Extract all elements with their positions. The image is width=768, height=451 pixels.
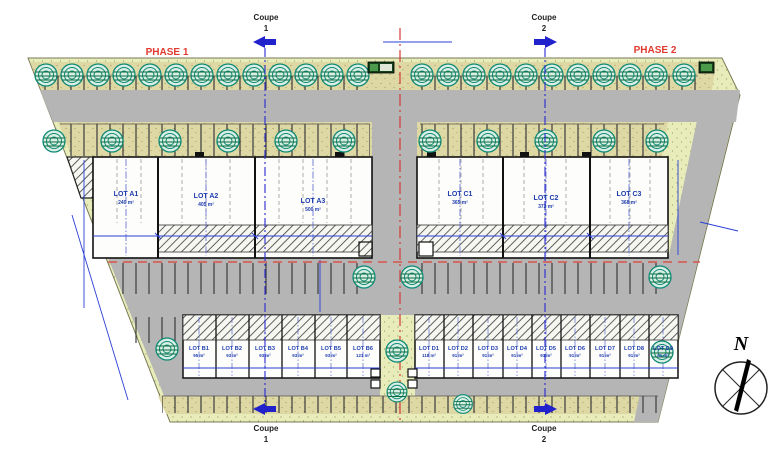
lot-d2-area: 91 m² — [452, 353, 464, 358]
lot-d9-name: LOT D9 — [653, 346, 673, 352]
lot-d1-name: LOT D1 — [419, 346, 439, 352]
lot-d6-area: 91 m² — [569, 353, 581, 358]
coupe1-top-word: Coupe — [254, 13, 279, 22]
lot-a3-name: LOT A3 — [301, 198, 326, 205]
lot-b2-name: LOT B2 — [222, 346, 242, 352]
coupe1-bottom-word: Coupe — [254, 424, 279, 433]
lot-b4-name: LOT B4 — [288, 346, 309, 352]
lot-b3-name: LOT B3 — [255, 346, 275, 352]
lot-a2-area: 405 m² — [198, 202, 214, 208]
lot-d8-area: 91 m² — [628, 353, 640, 358]
hatched-existing-structure — [67, 157, 93, 198]
lot-b2-area: 93 m² — [226, 353, 238, 358]
lot-b6-name: LOT B6 — [353, 346, 373, 352]
lot-d1-area: 118 m² — [422, 353, 436, 358]
coupe2-bottom-num: 2 — [542, 435, 547, 444]
coupe1-top-num: 1 — [264, 24, 269, 33]
lot-b5-area: 93 m² — [325, 353, 337, 358]
coupe2-bottom-word: Coupe — [532, 424, 557, 433]
lot-d7-area: 91 m² — [599, 353, 611, 358]
lot-d6-name: LOT D6 — [565, 346, 585, 352]
north-compass: N — [715, 333, 767, 414]
lot-d7-name: LOT D7 — [595, 346, 615, 352]
row-b — [183, 315, 380, 378]
coupe2-top-word: Coupe — [532, 13, 557, 22]
lot-d3-area: 91 m² — [482, 353, 494, 358]
lot-d5-area: 91 m² — [540, 353, 552, 358]
site-plan-drawing: N PHASE 1 PHASE 2 Coupe 1 Coupe 2 Coupe … — [0, 0, 768, 451]
lot-b3-area: 93 m² — [259, 353, 271, 358]
lot-c2-name: LOT C2 — [534, 195, 559, 202]
phase1-label: PHASE 1 — [146, 47, 189, 58]
lot-a2-name: LOT A2 — [194, 193, 219, 200]
lot-a1-area: 240 m² — [118, 200, 134, 206]
lot-d8-name: LOT D8 — [624, 346, 644, 352]
coupe2-top-num: 2 — [542, 24, 547, 33]
lot-d4-name: LOT D4 — [507, 346, 528, 352]
lot-c3-name: LOT C3 — [617, 191, 642, 198]
coupe1-bottom-num: 1 — [264, 435, 269, 444]
lot-c1-area: 365 m² — [452, 200, 468, 206]
north-label: N — [733, 333, 750, 355]
lot-b4-area: 93 m² — [292, 353, 304, 358]
lot-b1-area: 95 m² — [193, 353, 205, 358]
lot-d4-area: 91 m² — [511, 353, 523, 358]
lot-d3-name: LOT D3 — [478, 346, 498, 352]
lot-a3-area: 500 m² — [305, 207, 321, 213]
phase2-label: PHASE 2 — [634, 45, 677, 56]
lot-b5-name: LOT B5 — [321, 346, 341, 352]
lot-b1-name: LOT B1 — [189, 346, 209, 352]
lot-c1-name: LOT C1 — [448, 191, 473, 198]
lot-d5-name: LOT D5 — [536, 346, 556, 352]
lot-b6-area: 121 m² — [356, 353, 370, 358]
lot-c3-area: 368 m² — [621, 200, 637, 206]
site-plan-page: N PHASE 1 PHASE 2 Coupe 1 Coupe 2 Coupe … — [0, 0, 768, 451]
lot-d9-area: 91 m² — [657, 353, 669, 358]
lot-a1-name: LOT A1 — [114, 191, 139, 198]
lot-c2-area: 372 m² — [538, 204, 554, 210]
building-a — [93, 152, 372, 258]
lot-d2-name: LOT D2 — [448, 346, 468, 352]
